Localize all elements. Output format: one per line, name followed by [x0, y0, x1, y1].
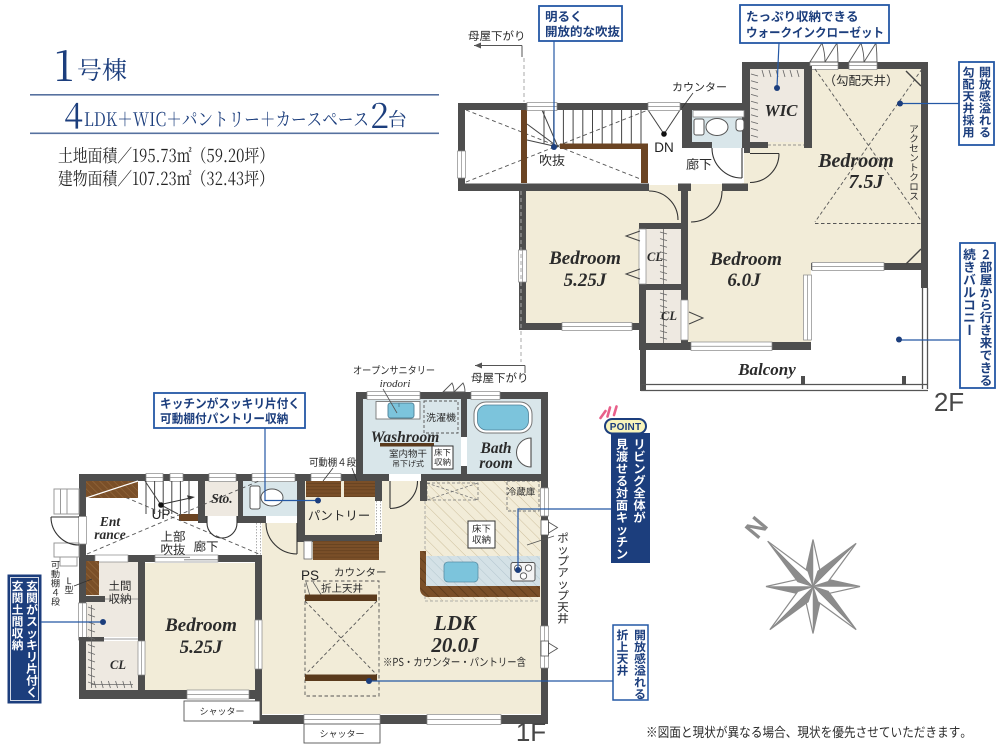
svg-text:POINT: POINT: [610, 422, 642, 433]
svg-text:PS: PS: [301, 568, 319, 583]
svg-text:Bedroom: Bedroom: [817, 150, 894, 172]
svg-text:WIC: WIC: [764, 101, 798, 120]
svg-text:CL: CL: [661, 309, 677, 323]
svg-text:7.5J: 7.5J: [849, 171, 885, 193]
svg-text:CL: CL: [647, 250, 663, 264]
svg-text:1F: 1F: [516, 717, 546, 747]
svg-text:5.25J: 5.25J: [564, 270, 607, 291]
svg-text:rance: rance: [94, 527, 126, 542]
svg-text:5.25J: 5.25J: [180, 637, 223, 658]
svg-text:CL: CL: [110, 658, 126, 672]
svg-text:DN: DN: [654, 140, 674, 155]
svg-text:2F: 2F: [934, 387, 964, 417]
svg-text:room: room: [479, 455, 513, 472]
svg-text:Sto.: Sto.: [211, 491, 232, 506]
svg-text:20.0J: 20.0J: [430, 633, 480, 657]
svg-text:Bedroom: Bedroom: [548, 248, 621, 269]
svg-text:LDK: LDK: [433, 611, 478, 635]
svg-text:Balcony: Balcony: [737, 360, 796, 379]
svg-text:Bedroom: Bedroom: [164, 615, 237, 636]
svg-text:irodori: irodori: [380, 378, 411, 390]
svg-text:6.0J: 6.0J: [727, 270, 761, 291]
svg-text:Bedroom: Bedroom: [709, 249, 782, 270]
